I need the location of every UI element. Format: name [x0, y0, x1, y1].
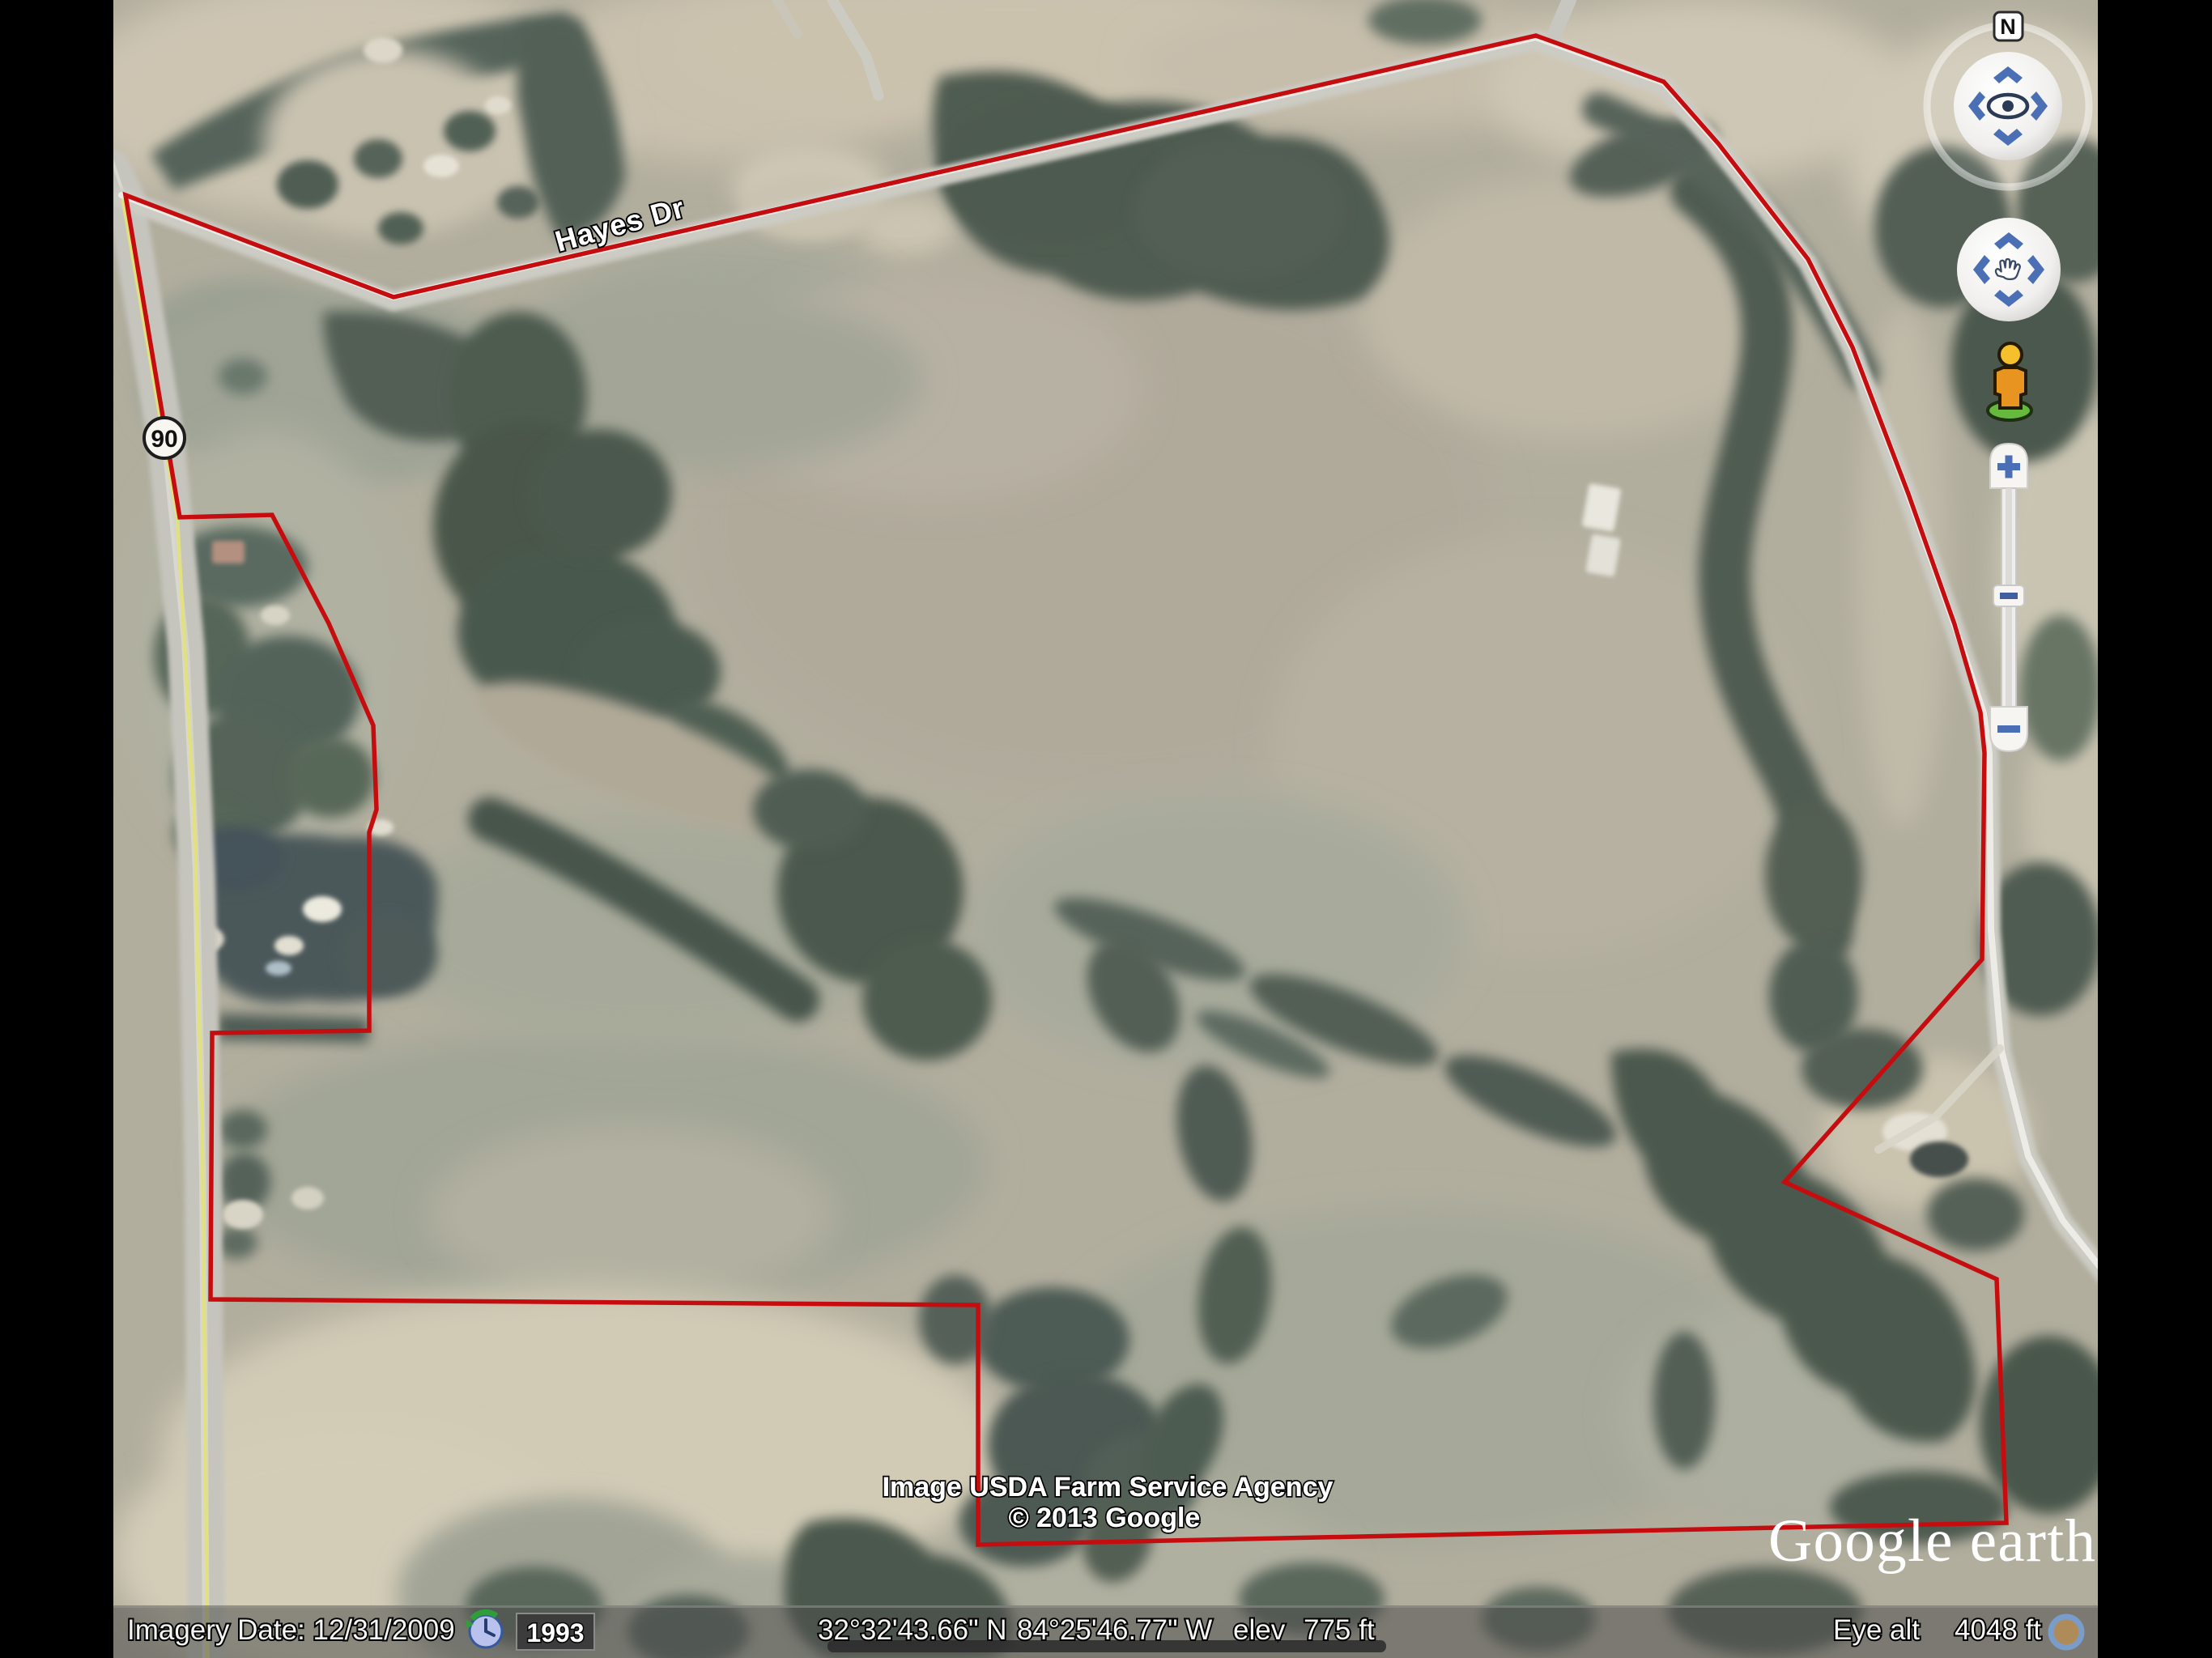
svg-text:© 2013 Google: © 2013 Google [1009, 1503, 1201, 1533]
svg-text:1993: 1993 [526, 1618, 584, 1647]
svg-text:4048 ft: 4048 ft [1955, 1614, 2041, 1646]
svg-text:elev: elev [1233, 1614, 1286, 1646]
svg-text:Imagery Date: 12/31/2009: Imagery Date: 12/31/2009 [127, 1614, 455, 1646]
svg-text:Eye alt: Eye alt [1833, 1614, 1920, 1646]
svg-text:Google earth: Google earth [1768, 1507, 2095, 1575]
svg-text:90: 90 [151, 426, 177, 453]
svg-text:32°32'43.66" N: 32°32'43.66" N [818, 1614, 1007, 1646]
svg-text:84°25'46.77" W: 84°25'46.77" W [1017, 1614, 1212, 1646]
svg-text:N: N [2000, 15, 2016, 39]
svg-text:775 ft: 775 ft [1304, 1614, 1375, 1646]
svg-text:Image USDA Farm Service Agency: Image USDA Farm Service Agency [883, 1472, 1334, 1503]
